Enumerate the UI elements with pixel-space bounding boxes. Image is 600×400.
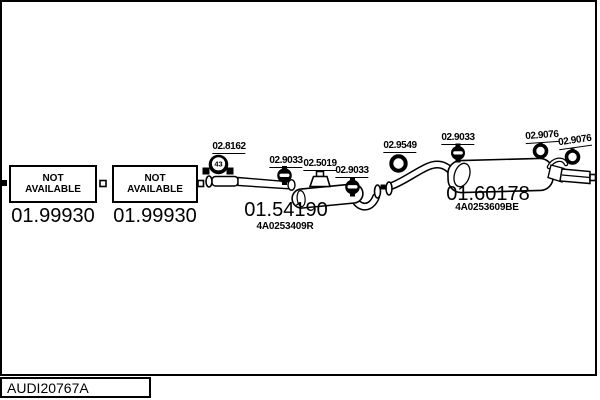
not-available-box-2: NOT AVAILABLE: [112, 165, 198, 203]
fitting-code-hanger-ring-1: 02.9076: [525, 130, 559, 144]
connector-square: [590, 175, 596, 181]
oem-ref-rear-muffler: 4A0253609BE: [455, 203, 518, 213]
part-number-not-available-2: 01.99930: [113, 206, 196, 226]
hanger-ring-icon: [535, 143, 547, 158]
gasket-ring-icon: [391, 156, 405, 170]
fitting-code-rubber-mount: 02.5019: [303, 159, 336, 171]
hanger-ring-icon: [567, 149, 579, 164]
not-available-line1: NOT: [42, 173, 63, 185]
part-number-rear-muffler: 01.60178: [446, 184, 529, 204]
part-number-not-available-1: 01.99930: [11, 206, 94, 226]
connecting-pipe: [391, 164, 452, 186]
connector-square: [100, 181, 106, 187]
drawing-code: AUDI20767A: [7, 380, 89, 396]
fitting-code-hanger-2: 02.9033: [335, 166, 368, 178]
fitting-code-clamp: 02.8162: [212, 142, 245, 154]
flange-joint: [375, 182, 393, 198]
title-block: AUDI20767A: [0, 377, 151, 398]
not-available-line1: NOT: [144, 173, 165, 185]
clamp-icon: 43: [203, 155, 234, 175]
oem-ref-middle-muffler: 4A0253409R: [257, 222, 314, 232]
not-available-box-1: NOT AVAILABLE: [9, 165, 97, 203]
fitting-code-hanger-3: 02.9033: [441, 133, 474, 145]
rubber-mount-icon: [310, 172, 330, 187]
clamp-size-label: 43: [214, 160, 222, 169]
fitting-code-hanger-1: 02.9033: [269, 156, 302, 168]
exhaust-parts-diagram-page: 43: [0, 0, 600, 400]
part-number-middle-muffler: 01.54190: [244, 200, 327, 220]
not-available-line2: AVAILABLE: [25, 184, 81, 196]
connector-square: [198, 181, 204, 187]
hanger-icon: [451, 144, 465, 163]
not-available-line2: AVAILABLE: [127, 184, 183, 196]
fitting-code-gasket: 02.9549: [383, 141, 416, 153]
connector-square: [2, 180, 7, 186]
